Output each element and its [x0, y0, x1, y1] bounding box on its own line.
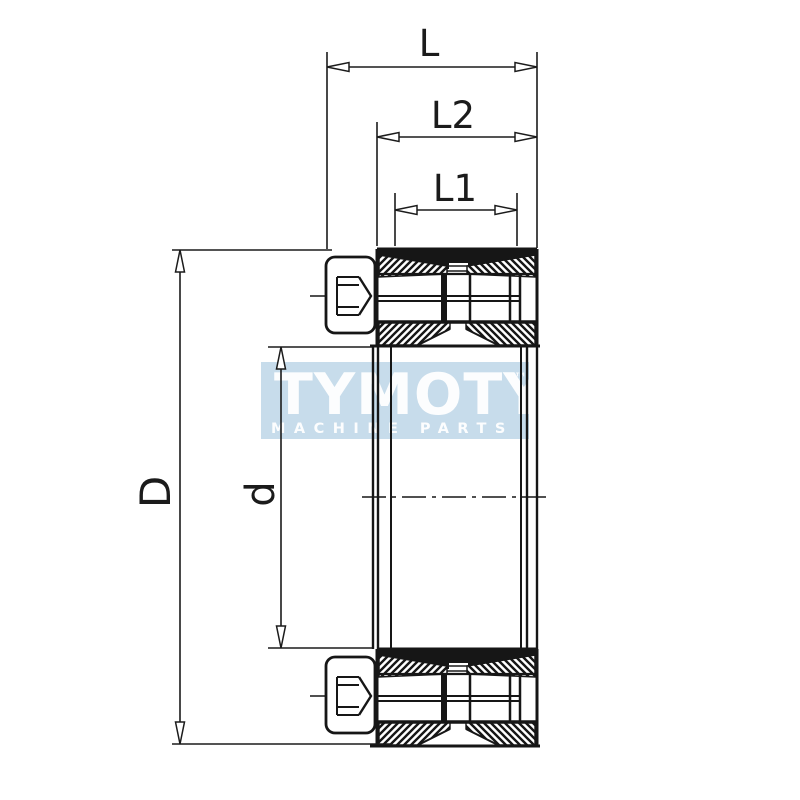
label-L2: L2 [431, 94, 475, 137]
watermark-tagline: MACHINE PARTS [271, 421, 514, 437]
watermark-brand: TYMOTY [274, 362, 546, 428]
technical-drawing: TYMOTY ™ MACHINE PARTS [0, 0, 800, 800]
label-d: d [238, 481, 284, 506]
label-D: D [131, 476, 180, 508]
watermark: TYMOTY ™ MACHINE PARTS [261, 362, 546, 439]
technical-drawing-page: TYMOTY ™ MACHINE PARTS [0, 0, 800, 800]
part-section [310, 249, 550, 747]
flange-unit-top [310, 249, 540, 347]
label-L1: L1 [433, 167, 477, 210]
flange-unit-bottom [310, 649, 540, 747]
label-L: L [419, 22, 440, 65]
